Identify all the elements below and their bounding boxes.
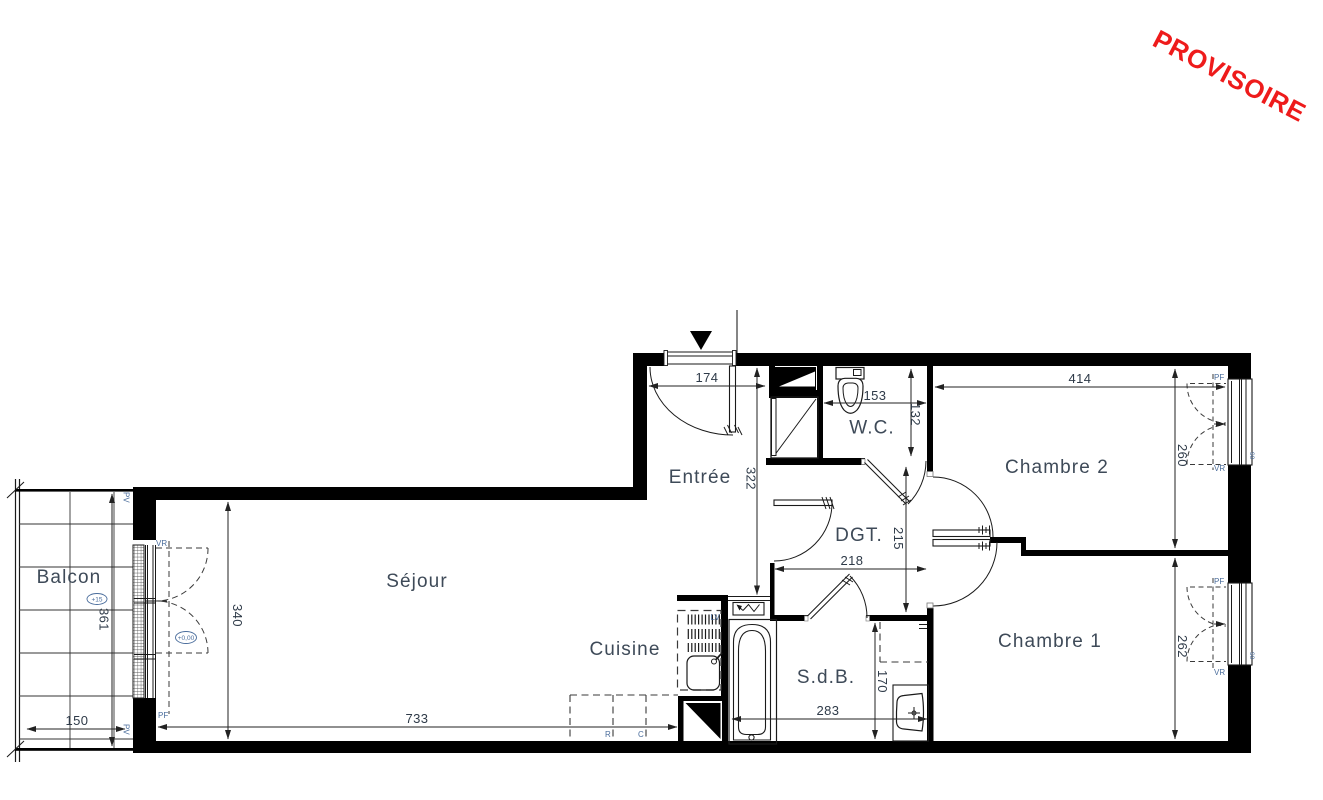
svg-text:Balcon: Balcon [37, 567, 102, 588]
svg-text:361: 361 [97, 608, 112, 631]
svg-text:218: 218 [841, 553, 864, 568]
svg-text:PF: PF [1214, 577, 1224, 586]
svg-text:PV: PV [122, 492, 131, 503]
svg-text:283: 283 [817, 703, 840, 718]
svg-text:150: 150 [66, 713, 89, 728]
svg-text:733: 733 [406, 711, 429, 726]
svg-text:Chambre 1: Chambre 1 [998, 631, 1102, 652]
svg-text:153: 153 [864, 388, 887, 403]
svg-text:322: 322 [744, 467, 759, 490]
svg-text:PV: PV [122, 724, 131, 735]
svg-text:132: 132 [908, 403, 923, 426]
svg-text:90: 90 [1248, 652, 1255, 660]
svg-text:LV: LV [711, 613, 721, 622]
svg-text:262: 262 [1175, 635, 1190, 658]
svg-text:Entrée: Entrée [669, 467, 732, 488]
svg-text:VR: VR [1214, 464, 1225, 473]
svg-text:414: 414 [1069, 371, 1092, 386]
svg-text:174: 174 [696, 370, 719, 385]
svg-text:Cuisine: Cuisine [589, 639, 660, 660]
svg-text:170: 170 [875, 670, 890, 693]
svg-text:R: R [605, 730, 611, 739]
svg-text:S.d.B.: S.d.B. [797, 667, 855, 688]
svg-text:+0,00: +0,00 [178, 635, 195, 642]
svg-text:Chambre 2: Chambre 2 [1005, 457, 1109, 478]
svg-text:+15: +15 [91, 597, 102, 604]
svg-text:C: C [638, 730, 644, 739]
svg-text:90: 90 [1248, 452, 1255, 460]
svg-text:VR: VR [1214, 668, 1225, 677]
svg-text:340: 340 [230, 604, 245, 627]
svg-text:DGT.: DGT. [835, 525, 883, 546]
svg-text:W.C.: W.C. [849, 418, 895, 439]
svg-text:215: 215 [891, 527, 906, 550]
svg-text:Séjour: Séjour [386, 571, 448, 592]
svg-text:260: 260 [1175, 444, 1190, 467]
svg-text:VR: VR [156, 539, 167, 548]
svg-text:PF: PF [158, 711, 168, 720]
svg-text:PF: PF [1214, 373, 1224, 382]
